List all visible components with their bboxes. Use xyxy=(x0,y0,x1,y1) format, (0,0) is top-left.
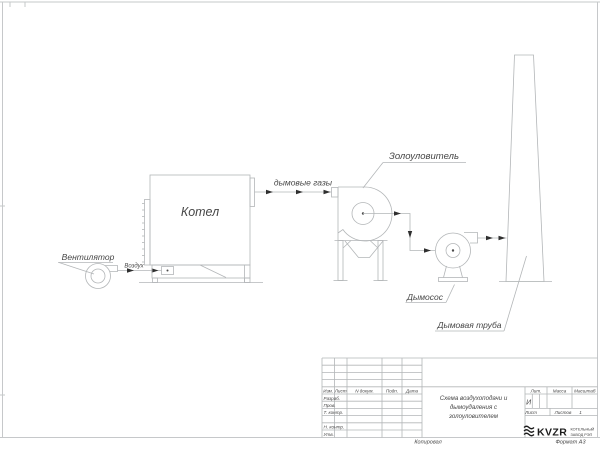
ash-collector-label: Золоуловитель xyxy=(363,151,466,188)
chimney-body xyxy=(506,55,544,282)
cyclone-inlet xyxy=(332,188,339,198)
tb-header-sign: Подп. xyxy=(386,389,398,394)
tb-row-prov: Пров. xyxy=(324,403,336,408)
kvzr-logo: KVZR КОТЕЛЬНЫЙ ЗАВОД РЭП xyxy=(524,426,595,438)
boiler-base xyxy=(152,265,250,278)
boiler: Котел xyxy=(142,175,255,283)
tb-org-line2: ЗАВОД РЭП xyxy=(571,433,593,437)
chimney xyxy=(506,55,544,282)
flue-gas-label-text: дымовые газы xyxy=(274,178,333,188)
tb-doc-title-line3: золоуловителем xyxy=(448,413,499,420)
tb-row-utv: Утв. xyxy=(324,432,334,437)
tb-sheets-value: 1 xyxy=(579,410,582,415)
tb-sheets-label: Листов xyxy=(554,410,572,415)
tb-lit-header: Лит. xyxy=(530,389,542,394)
flue-arrow xyxy=(266,190,273,194)
tb-scale-header: Масштаб xyxy=(574,389,596,394)
tb-row-nkontr: Н. контр. xyxy=(324,425,345,430)
tb-doc-title-line2: дымоудаления с xyxy=(450,404,498,411)
fan-symbol xyxy=(86,264,118,289)
cyclone-outlet-line xyxy=(363,211,435,252)
cyclone-left-leg xyxy=(338,241,343,281)
flue-arrow xyxy=(324,190,331,194)
tb-doc-title-line1: Схема воздухоподачи и xyxy=(440,395,508,402)
copied-label: Копировал xyxy=(414,440,441,446)
chimney-label-text: Дымовая труба xyxy=(436,320,501,330)
boiler-right-leg xyxy=(245,278,251,283)
fan-label-text: Вентилятор xyxy=(62,252,115,262)
tb-header-izm: Изм. xyxy=(323,389,333,394)
flow-arrow xyxy=(408,231,412,238)
tb-sheet-label: Лист xyxy=(524,410,537,415)
cyclone-scroll xyxy=(338,187,392,241)
ash-collector xyxy=(332,187,393,281)
flue-gas-line: дымовые газы xyxy=(255,178,333,195)
tb-header-list: Лист xyxy=(334,389,347,394)
exhauster-base xyxy=(439,278,468,282)
sheet-margin-texts: Копировал Формат А3 xyxy=(414,440,586,446)
boiler-left-leg xyxy=(153,278,158,283)
tb-lit-value: И xyxy=(526,400,532,407)
title-block: Изм. Лист N докум. Подп. Дата Разраб. Пр… xyxy=(322,358,598,439)
smoke-exhauster-label: Дымосос xyxy=(406,285,455,303)
drawing-sheet: Вентилятор Воздух xyxy=(0,0,600,450)
exhauster-outlet-line xyxy=(478,236,507,240)
flow-arrow xyxy=(486,236,493,240)
tb-row-tkontr: Т. контр. xyxy=(324,410,344,415)
boiler-left-strip xyxy=(145,200,151,266)
boiler-label-text: Котел xyxy=(181,205,219,219)
tb-header-date: Дата xyxy=(405,389,419,394)
ash-collector-label-text: Золоуловитель xyxy=(389,151,459,162)
flue-arrow xyxy=(296,190,303,194)
tb-row-razrab: Разраб. xyxy=(324,396,341,401)
format-label: Формат А3 xyxy=(555,440,586,446)
air-arrow xyxy=(152,268,159,272)
smoke-exhauster xyxy=(436,233,478,282)
drawing-canvas: Вентилятор Воздух xyxy=(0,0,600,450)
fan-casing-circle xyxy=(86,264,111,289)
waves-icon xyxy=(524,426,534,436)
tb-mass-header: Масса xyxy=(553,389,567,394)
flow-arrow xyxy=(394,211,401,215)
air-label-text: Воздух xyxy=(124,264,144,270)
boiler-body xyxy=(150,175,250,265)
boiler-gas-outlet-flange xyxy=(250,178,255,207)
smoke-exhauster-label-text: Дымосос xyxy=(406,292,444,302)
tb-header-doc: N докум. xyxy=(355,389,374,394)
cyclone-hopper xyxy=(345,241,383,258)
tb-logo-text: KVZR xyxy=(537,427,567,439)
tb-org-line1: КОТЕЛЬНЫЙ xyxy=(571,428,595,432)
ground-lines xyxy=(139,282,552,283)
flow-arrow xyxy=(424,248,431,252)
flow-arrow xyxy=(499,236,506,240)
